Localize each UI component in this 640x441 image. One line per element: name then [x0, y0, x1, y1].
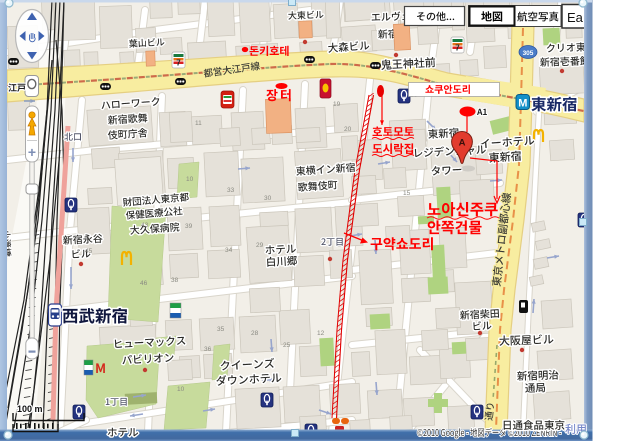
svg-text:25: 25 [283, 342, 291, 349]
svg-text:20: 20 [344, 126, 352, 133]
svg-text:46: 46 [140, 280, 148, 287]
svg-text:39: 39 [185, 223, 193, 230]
svg-text:43: 43 [141, 222, 149, 229]
svg-text:15: 15 [403, 190, 411, 197]
svg-text:33: 33 [227, 187, 235, 194]
svg-text:34: 34 [225, 247, 233, 254]
svg-text:100 m: 100 m [17, 404, 43, 414]
svg-text:305: 305 [523, 50, 534, 57]
svg-text:Ea: Ea [567, 10, 584, 25]
svg-text:19: 19 [333, 101, 341, 108]
svg-text:7: 7 [455, 44, 460, 53]
svg-text:30: 30 [264, 195, 272, 202]
svg-text:35: 35 [217, 326, 225, 333]
svg-text:7: 7 [176, 59, 181, 68]
svg-text:29: 29 [256, 242, 264, 249]
svg-text:+: + [28, 144, 36, 160]
svg-text:36: 36 [204, 346, 212, 353]
svg-text:11: 11 [195, 120, 202, 127]
svg-text:38: 38 [171, 277, 179, 284]
svg-text:10: 10 [177, 386, 185, 393]
svg-text:M: M [518, 98, 527, 110]
svg-text:10: 10 [186, 176, 194, 183]
svg-text:45: 45 [85, 248, 93, 255]
svg-text:28: 28 [251, 330, 259, 337]
svg-text:12: 12 [317, 330, 325, 337]
svg-text:A: A [459, 138, 466, 149]
